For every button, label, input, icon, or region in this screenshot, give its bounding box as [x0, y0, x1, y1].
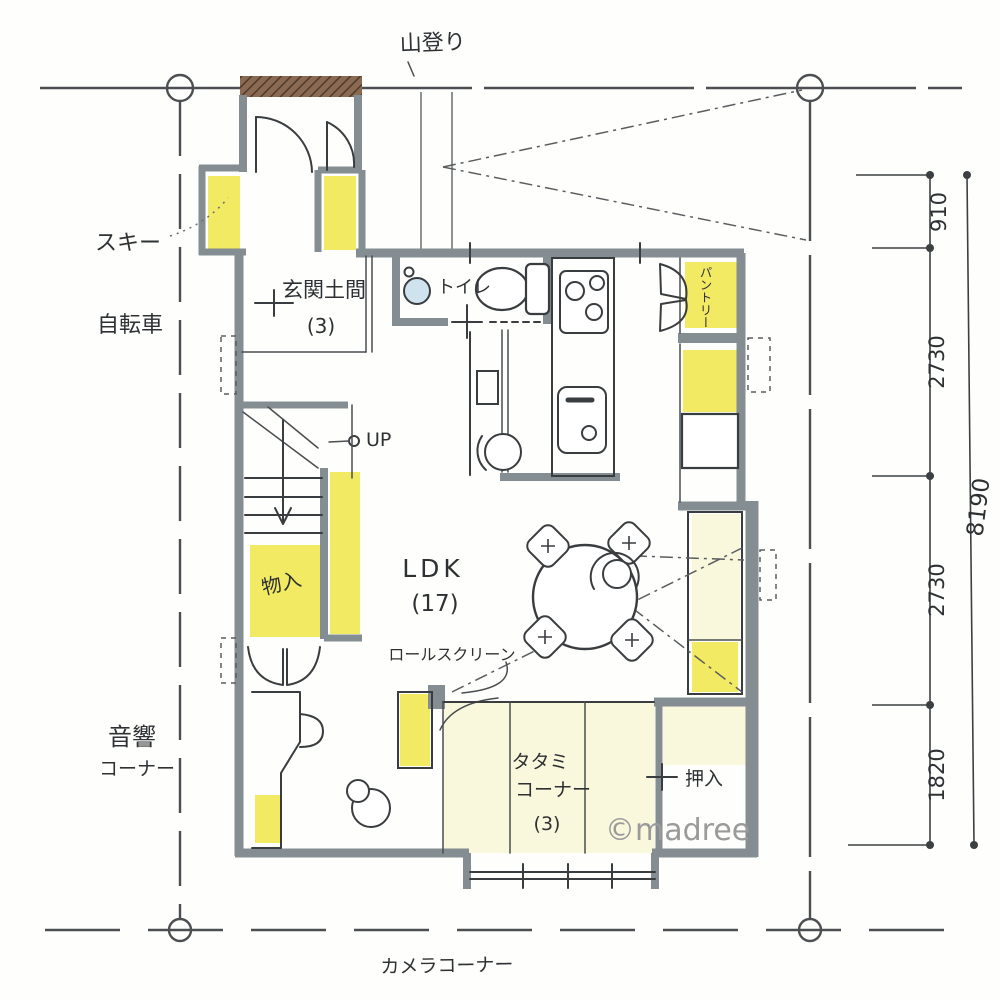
entry-closet-highlight	[324, 176, 356, 250]
floor-plan-drawing: 910 2730 2730 1820 8190 山登り スキー 自転車 音響 コ…	[0, 0, 1000, 1000]
label-bicycle: 自転車	[97, 313, 163, 338]
refrigerator	[682, 414, 738, 468]
stove	[560, 271, 608, 333]
label-ski: スキー	[95, 231, 161, 256]
dimension-chain: 910 2730 2730 1820 8190	[848, 171, 996, 849]
dim-2730-lower: 2730	[925, 563, 949, 616]
label-tatami-1: タタミ	[511, 751, 568, 773]
label-ldk: LDK	[402, 554, 464, 583]
toilet-tank	[526, 264, 549, 314]
entry-door-swing	[256, 117, 312, 172]
floor-plan-sketch: 910 2730 2730 1820 8190 山登り スキー 自転車 音響 コ…	[0, 0, 1000, 1000]
label-genkan: 玄関土間	[282, 278, 366, 302]
label-ldk-size: (17)	[411, 591, 458, 617]
label-oshiire: 押入	[685, 768, 723, 790]
kitchen-storage-highlight	[683, 350, 738, 412]
dim-910: 910	[927, 192, 951, 232]
label-camera-corner: カメラコーナー	[380, 954, 513, 978]
dim-2730-upper: 2730	[925, 335, 949, 388]
study-desk-highlight	[400, 694, 430, 766]
porch-hatch	[240, 76, 362, 97]
rollscreen-leader	[462, 662, 507, 693]
stair-side-shelf-highlight	[330, 472, 360, 634]
ski-closet-highlight	[208, 176, 240, 250]
baby-chair	[603, 560, 631, 588]
dim-total-8190: 8190	[963, 477, 996, 538]
label-toilet: トイレ	[437, 277, 491, 298]
audio-chair	[300, 714, 323, 747]
monoire-door	[248, 647, 283, 685]
washbasin	[404, 278, 430, 304]
closet-door-swing	[327, 122, 354, 167]
label-genkan-size: (3)	[307, 314, 335, 338]
mountain-view-lines	[408, 62, 806, 252]
counter-chair	[485, 434, 521, 470]
label-audio-2: コーナー	[99, 758, 175, 780]
label-audio-1: 音響	[108, 723, 156, 751]
oshiire-tint	[663, 705, 749, 765]
kitchen-sink	[558, 387, 606, 453]
label-yamanobori: 山登り	[399, 30, 466, 57]
watermark: ©madree	[605, 813, 750, 848]
label-pantry: パントリー	[698, 266, 713, 329]
cabinet-highlight	[692, 514, 740, 640]
bifold-door	[660, 264, 686, 299]
label-up: UP	[366, 429, 391, 451]
counter-shelf	[477, 371, 498, 404]
label-roll-screen: ロールスクリーン	[388, 645, 515, 664]
labels: 山登り スキー 自転車 音響 コーナー カメラコーナー 玄関土間 (3) トイレ…	[95, 30, 750, 978]
label-tatami-2: コーナー	[515, 779, 591, 801]
dim-1820: 1820	[925, 748, 949, 801]
label-tatami-size: (3)	[534, 813, 561, 835]
audio-desk-highlight	[255, 795, 281, 843]
